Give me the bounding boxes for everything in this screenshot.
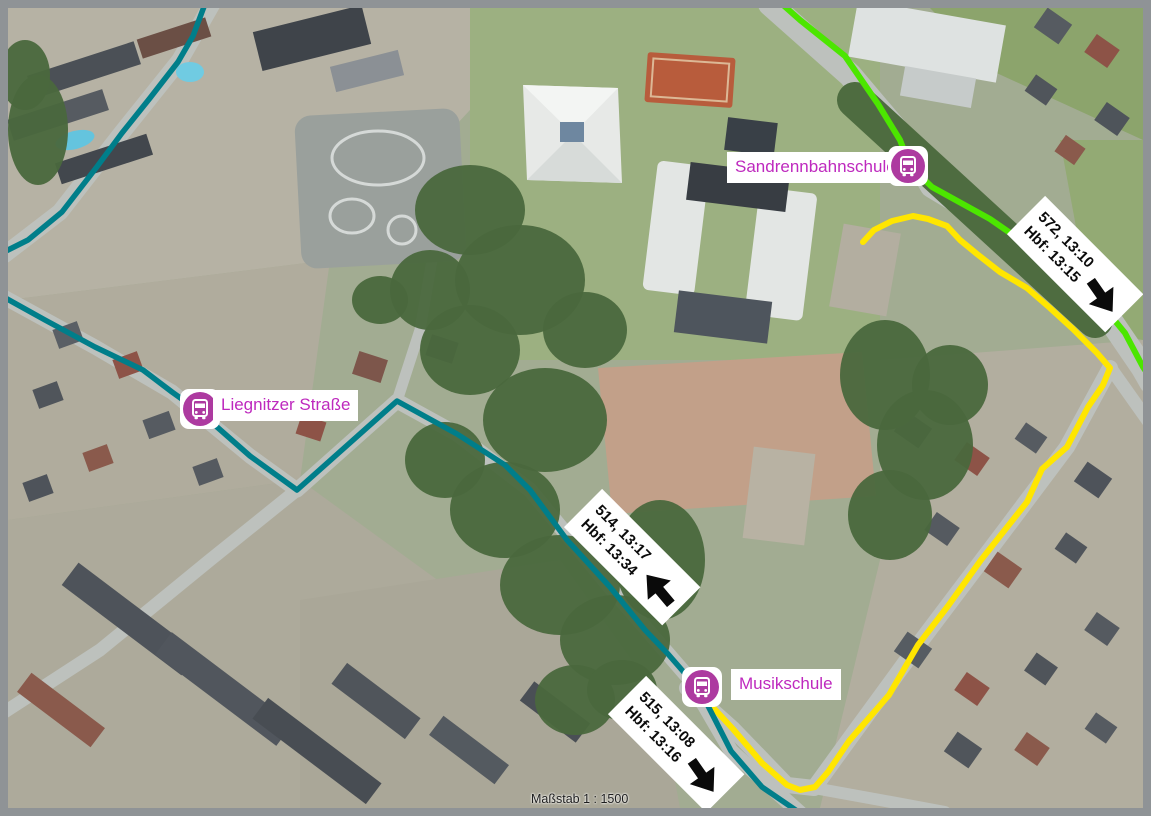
bus-stop-label: Musikschule [731,669,841,700]
bus-stop-label: Liegnitzer Straße [213,390,358,421]
aerial-map[interactable]: Sandrennbahnschule [8,8,1143,808]
bus-stop-label: Sandrennbahnschule [727,152,904,183]
bus-icon [685,670,719,704]
map-window: Sandrennbahnschule [0,0,1151,816]
bus-stop-icon[interactable] [888,146,928,186]
bus-stop-icon[interactable] [682,667,722,707]
bus-icon [183,392,217,426]
scale-label: Maßstab 1 : 1500 [531,792,628,806]
satellite-layer [8,8,1143,808]
bus-icon [891,149,925,183]
